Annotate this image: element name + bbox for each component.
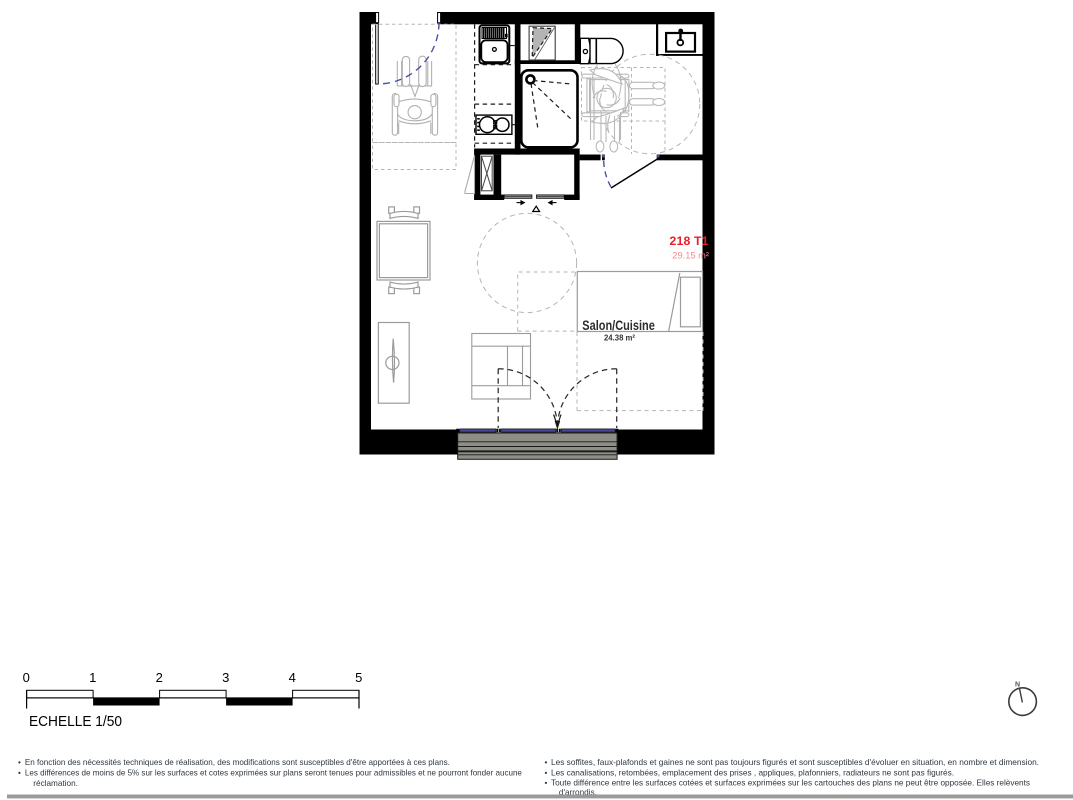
- svg-text:•: •: [545, 758, 548, 767]
- svg-text:29.15 m²: 29.15 m²: [672, 250, 709, 260]
- svg-text:Salon/Cuisine: Salon/Cuisine: [582, 318, 655, 333]
- svg-text:Les canalisations, retombées,: Les canalisations, retombées, emplacemen…: [551, 769, 954, 778]
- svg-text:Les soffites, faux-plafonds et: Les soffites, faux-plafonds et gaines ne…: [551, 758, 1039, 767]
- svg-text:3: 3: [222, 670, 229, 685]
- svg-text:5: 5: [355, 670, 362, 685]
- svg-text:Toute différence entre les sur: Toute différence entre les surfaces coté…: [551, 779, 1030, 788]
- svg-text:Les différences de moins de 5%: Les différences de moins de 5% sur les s…: [25, 769, 522, 778]
- svg-text:218 T1: 218 T1: [670, 234, 709, 248]
- svg-text:En fonction des nécessités tec: En fonction des nécessités techniques de…: [25, 758, 450, 767]
- svg-text:24.38 m²: 24.38 m²: [604, 332, 635, 342]
- svg-text:•: •: [545, 769, 548, 778]
- svg-text:4: 4: [289, 670, 296, 685]
- svg-text:0: 0: [23, 670, 30, 685]
- svg-text:•: •: [18, 769, 21, 778]
- svg-text:•: •: [545, 779, 548, 788]
- svg-text:ECHELLE 1/50: ECHELLE 1/50: [29, 714, 122, 730]
- svg-text:N: N: [1015, 682, 1020, 689]
- svg-text:réclamation.: réclamation.: [33, 779, 78, 788]
- svg-text:1: 1: [89, 670, 96, 685]
- svg-text:2: 2: [156, 670, 163, 685]
- svg-text:•: •: [18, 758, 21, 767]
